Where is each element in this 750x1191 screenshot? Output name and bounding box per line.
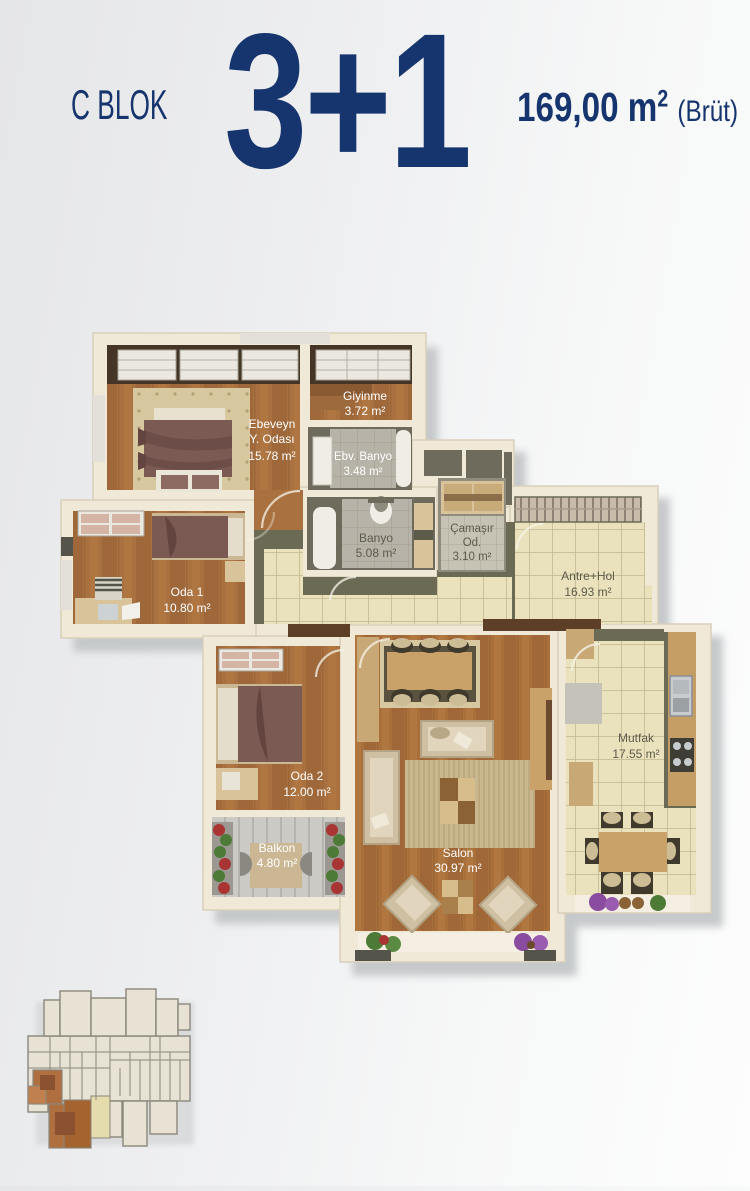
svg-text:3.48 m²: 3.48 m² — [344, 466, 383, 478]
svg-text:10.80 m²: 10.80 m² — [163, 601, 210, 615]
svg-text:Mutfak: Mutfak — [618, 731, 655, 745]
svg-text:16.93 m²: 16.93 m² — [564, 585, 611, 599]
svg-text:Balkon: Balkon — [259, 841, 296, 855]
svg-text:15.78 m²: 15.78 m² — [248, 449, 295, 463]
svg-text:3.72 m²: 3.72 m² — [345, 404, 386, 418]
svg-text:17.55 m²: 17.55 m² — [612, 747, 659, 761]
svg-text:Oda 1: Oda 1 — [171, 585, 204, 599]
svg-text:Salon: Salon — [443, 846, 474, 860]
svg-text:Çamaşır: Çamaşır — [450, 523, 494, 535]
svg-text:Giyinme: Giyinme — [343, 389, 387, 403]
svg-text:Ebv. Banyo: Ebv. Banyo — [334, 451, 392, 463]
svg-text:Oda 2: Oda 2 — [291, 769, 324, 783]
svg-text:30.97 m²: 30.97 m² — [434, 861, 481, 875]
svg-text:4.80 m²: 4.80 m² — [257, 856, 298, 870]
svg-text:12.00 m²: 12.00 m² — [283, 785, 330, 799]
svg-text:Od.: Od. — [463, 537, 482, 549]
svg-text:5.08 m²: 5.08 m² — [356, 546, 397, 560]
svg-text:Antre+Hol: Antre+Hol — [561, 569, 615, 583]
svg-text:Banyo: Banyo — [359, 531, 393, 545]
svg-text:3.10 m²: 3.10 m² — [453, 551, 492, 563]
svg-text:Ebeveyn: Ebeveyn — [249, 417, 296, 431]
svg-text:Y. Odası: Y. Odası — [249, 432, 294, 446]
